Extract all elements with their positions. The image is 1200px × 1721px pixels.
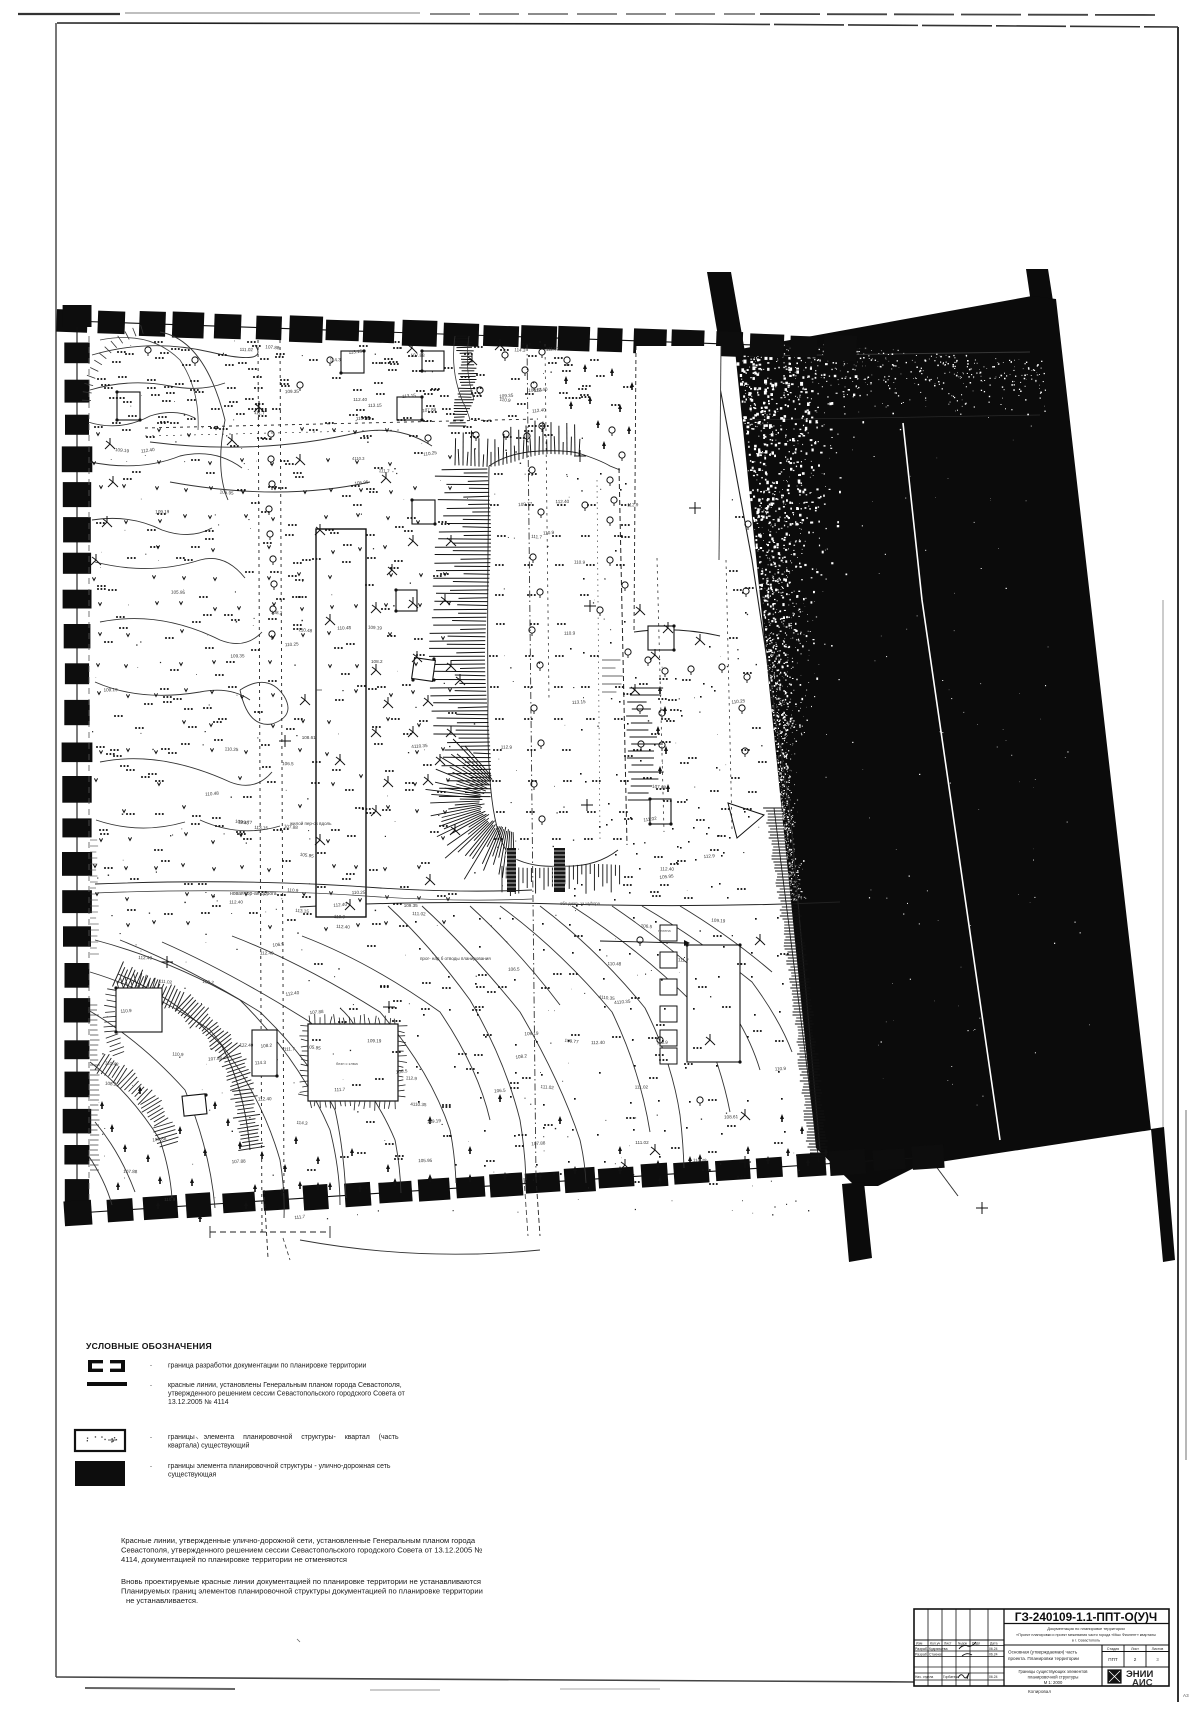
- svg-text:-: -: [150, 1383, 152, 1389]
- svg-text:111.7: 111.7: [678, 957, 690, 963]
- svg-text:109.35: 109.35: [404, 903, 418, 908]
- svg-text:Лист: Лист: [1131, 1647, 1139, 1651]
- svg-text:106.5: 106.5: [272, 942, 284, 948]
- svg-text:ГЗ-240109-1.1-ППТ-О(У)Ч: ГЗ-240109-1.1-ППТ-О(У)Ч: [1015, 1610, 1157, 1624]
- svg-text:112.40: 112.40: [336, 924, 350, 930]
- svg-text:ППТ: ППТ: [1108, 1657, 1118, 1662]
- svg-text:108.2: 108.2: [371, 659, 383, 664]
- svg-text:109.77: 109.77: [518, 501, 533, 507]
- svg-text:105.95: 105.95: [171, 589, 186, 595]
- svg-text:112.40: 112.40: [260, 950, 274, 955]
- svg-text:прог- над б отводы планиров: прог- над б отводы планирования: [420, 956, 491, 961]
- svg-text:-: -: [150, 1435, 152, 1441]
- svg-text:112.40: 112.40: [229, 899, 243, 904]
- svg-text:Листов: Листов: [1152, 1647, 1164, 1651]
- svg-text:утвержденного решением сессии: утвержденного решением сессии Севастопол…: [168, 1391, 406, 1398]
- svg-text:М 1: 2000: М 1: 2000: [1044, 1680, 1063, 1685]
- svg-text:109.35: 109.35: [285, 389, 300, 394]
- svg-text:Документация по планировке тер: Документация по планировке территории: [1047, 1626, 1125, 1631]
- svg-text:113.15: 113.15: [572, 699, 586, 705]
- svg-text:112.9: 112.9: [627, 502, 639, 507]
- svg-text:13.12.2005 № 4114: 13.12.2005 № 4114: [168, 1399, 229, 1406]
- svg-text:111.7: 111.7: [379, 468, 391, 474]
- svg-text:111.7: 111.7: [531, 534, 543, 540]
- svg-text:110.9: 110.9: [775, 1066, 787, 1072]
- svg-text:110.9: 110.9: [334, 914, 346, 919]
- svg-text:108.2: 108.2: [260, 1043, 272, 1049]
- svg-text:пелена: пелена: [658, 929, 671, 933]
- svg-text:не устанавливается.: не устанавливается.: [126, 1596, 198, 1605]
- svg-text:112.9: 112.9: [703, 853, 715, 859]
- svg-text:106.5: 106.5: [282, 761, 294, 766]
- svg-text:110.9: 110.9: [657, 1040, 669, 1045]
- svg-text:113.15: 113.15: [254, 825, 268, 831]
- svg-text:108.2: 108.2: [105, 1081, 117, 1087]
- svg-text:112.40: 112.40: [138, 955, 152, 960]
- svg-text:красные линии, установлены: красные линии, установлены Генеральным п…: [168, 1382, 402, 1389]
- svg-text:Основная (утверждаемая) часть: Основная (утверждаемая) часть: [1008, 1650, 1078, 1655]
- svg-text:06.24: 06.24: [989, 1675, 998, 1679]
- svg-text:06.24: 06.24: [989, 1653, 998, 1657]
- svg-text:107.88: 107.88: [265, 344, 280, 350]
- svg-text:существующая: существующая: [168, 1472, 217, 1479]
- svg-text:обл диап- за wybopa: обл диап- за wybopa: [560, 901, 601, 906]
- svg-text:112.40: 112.40: [258, 1096, 272, 1101]
- svg-text:113.15: 113.15: [368, 403, 382, 408]
- svg-text:Стадия: Стадия: [1107, 1647, 1119, 1651]
- svg-text:Разраб.: Разраб.: [915, 1653, 928, 1657]
- svg-text:111.7: 111.7: [334, 1087, 345, 1092]
- svg-text:Изм: Изм: [916, 1642, 923, 1646]
- svg-text:-: -: [150, 1363, 152, 1369]
- svg-text:Кол.уч: Кол.уч: [930, 1642, 940, 1646]
- svg-text:Стахнев: Стахнев: [929, 1653, 942, 1657]
- svg-text:106.5: 106.5: [508, 967, 520, 972]
- svg-text:108.61: 108.61: [302, 735, 316, 740]
- svg-text:109.35: 109.35: [230, 653, 245, 658]
- svg-text:безн с клма: безн с клма: [336, 1061, 359, 1066]
- svg-text:Копировал: Копировал: [1028, 1689, 1051, 1694]
- svg-text:108.61: 108.61: [724, 1114, 739, 1120]
- svg-text:112.9: 112.9: [501, 745, 513, 750]
- svg-text:2: 2: [1134, 1657, 1137, 1662]
- svg-text:110.25: 110.25: [356, 416, 370, 421]
- svg-text:107.88: 107.88: [531, 1140, 546, 1146]
- svg-text:Лист: Лист: [944, 1642, 952, 1646]
- svg-text:105.95: 105.95: [418, 1158, 433, 1163]
- svg-text:112.40: 112.40: [555, 499, 569, 504]
- svg-text:4110.3: 4110.3: [352, 456, 365, 461]
- svg-text:Красные линии, утвержденные ул: Красные линии, утвержденные улично-дорож…: [121, 1536, 476, 1545]
- svg-text:110.48: 110.48: [693, 1158, 707, 1163]
- svg-text:107.88: 107.88: [410, 353, 425, 358]
- svg-text:108.2: 108.2: [271, 610, 283, 616]
- svg-text:06.24: 06.24: [989, 1647, 998, 1651]
- svg-text:границы элемента планировочной: границы элемента планировочной структуры…: [168, 1462, 391, 1470]
- svg-text:111.02: 111.02: [240, 347, 254, 352]
- svg-text:110.9: 110.9: [164, 1197, 176, 1202]
- svg-text:110.9: 110.9: [120, 1008, 132, 1014]
- svg-text:111.7: 111.7: [254, 410, 266, 416]
- svg-text:109.77: 109.77: [238, 820, 253, 826]
- svg-text:114.3: 114.3: [514, 347, 526, 353]
- svg-text:4114, документацией по планиро: 4114, документацией по планировке террит…: [121, 1555, 347, 1564]
- svg-text:Вновь проектируемые красные ли: Вновь проектируемые красные линии докуме…: [121, 1577, 481, 1586]
- svg-text:проекта. Планировки территории: проекта. Планировки территории: [1008, 1656, 1079, 1661]
- svg-text:жилой пер-ок вдоль: жилой пер-ок вдоль: [290, 820, 332, 826]
- svg-text:АИС: АИС: [1132, 1678, 1153, 1689]
- svg-text:114.3: 114.3: [330, 357, 342, 362]
- svg-text:114.3: 114.3: [255, 1060, 267, 1066]
- svg-text:граница разработки документаци: граница разработки документации по плани…: [168, 1362, 367, 1370]
- svg-text:112.40: 112.40: [353, 397, 367, 402]
- svg-text:112.9: 112.9: [406, 1075, 418, 1081]
- svg-text:111.7: 111.7: [284, 1046, 295, 1051]
- svg-text:106.5: 106.5: [494, 1088, 506, 1094]
- svg-text:109.19: 109.19: [155, 509, 170, 514]
- svg-text:109.19: 109.19: [367, 1038, 382, 1043]
- svg-text:в г. Севастополь: в г. Севастополь: [1072, 1639, 1100, 1643]
- svg-text:4110.35: 4110.35: [410, 1102, 427, 1108]
- svg-text:Разраб.: Разраб.: [915, 1647, 928, 1651]
- svg-text:Границы существующих элементов: Границы существующих элементов: [1018, 1669, 1088, 1674]
- svg-text:110.9: 110.9: [574, 559, 586, 564]
- svg-text:112.40: 112.40: [591, 1040, 605, 1045]
- svg-text:110.25: 110.25: [352, 890, 366, 895]
- svg-text:111.02: 111.02: [635, 1140, 649, 1145]
- svg-text:111.02: 111.02: [635, 1085, 649, 1090]
- svg-text:112.40: 112.40: [660, 866, 674, 871]
- svg-text:квартала) существующий: квартала) существующий: [168, 1442, 250, 1450]
- svg-text:Горбатюк: Горбатюк: [943, 1675, 958, 1679]
- svg-text:109.19: 109.19: [368, 625, 383, 631]
- svg-text:112.40: 112.40: [239, 1042, 253, 1047]
- svg-text:Планируемых границ элементов п: Планируемых границ элементов планировочн…: [121, 1587, 483, 1596]
- svg-text:110.9: 110.9: [172, 1052, 184, 1058]
- svg-text:-: -: [150, 1464, 152, 1470]
- svg-text:«Проект планировки и проект ме: «Проект планировки и проект межевания ча…: [1016, 1633, 1156, 1637]
- svg-text:111.02: 111.02: [546, 346, 560, 352]
- svg-text:Дата: Дата: [990, 1642, 998, 1646]
- svg-text:107.88: 107.88: [208, 1056, 223, 1062]
- svg-text:А3: А3: [1183, 1693, 1189, 1698]
- svg-text:107.88: 107.88: [232, 1158, 247, 1164]
- svg-text:110.9: 110.9: [564, 631, 576, 636]
- svg-text:109.19: 109.19: [103, 687, 118, 693]
- svg-text:Кудрявцева: Кудрявцева: [929, 1647, 948, 1651]
- svg-text:110.48: 110.48: [337, 625, 351, 631]
- svg-text:110.9: 110.9: [543, 530, 555, 536]
- svg-text:111.02: 111.02: [412, 911, 426, 916]
- svg-text:110.25: 110.25: [225, 746, 239, 752]
- svg-text:УСЛОВНЫЕ ОБОЗНАЧЕНИЯ: УСЛОВНЫЕ ОБОЗНАЧЕНИЯ: [86, 1341, 212, 1351]
- svg-text:границы элемента планировочной: границы элемента планировочной структуры…: [168, 1433, 399, 1441]
- svg-text:114.3: 114.3: [296, 1120, 308, 1126]
- svg-text:109.19: 109.19: [524, 1031, 539, 1037]
- svg-text:планировочной структуры: планировочной структуры: [1028, 1675, 1079, 1680]
- svg-text:Севастополя, утвержденного реш: Севастополя, утвержденного решением сесс…: [121, 1546, 483, 1555]
- svg-text:109.19: 109.19: [711, 918, 726, 924]
- svg-text:110.48: 110.48: [607, 961, 621, 966]
- svg-text:новая гор-ая дорога: новая гор-ая дорога: [230, 891, 277, 897]
- svg-text:110.25: 110.25: [285, 641, 299, 647]
- svg-text:Нач. отдела: Нач. отдела: [915, 1675, 933, 1679]
- svg-text:107.88: 107.88: [123, 1169, 138, 1174]
